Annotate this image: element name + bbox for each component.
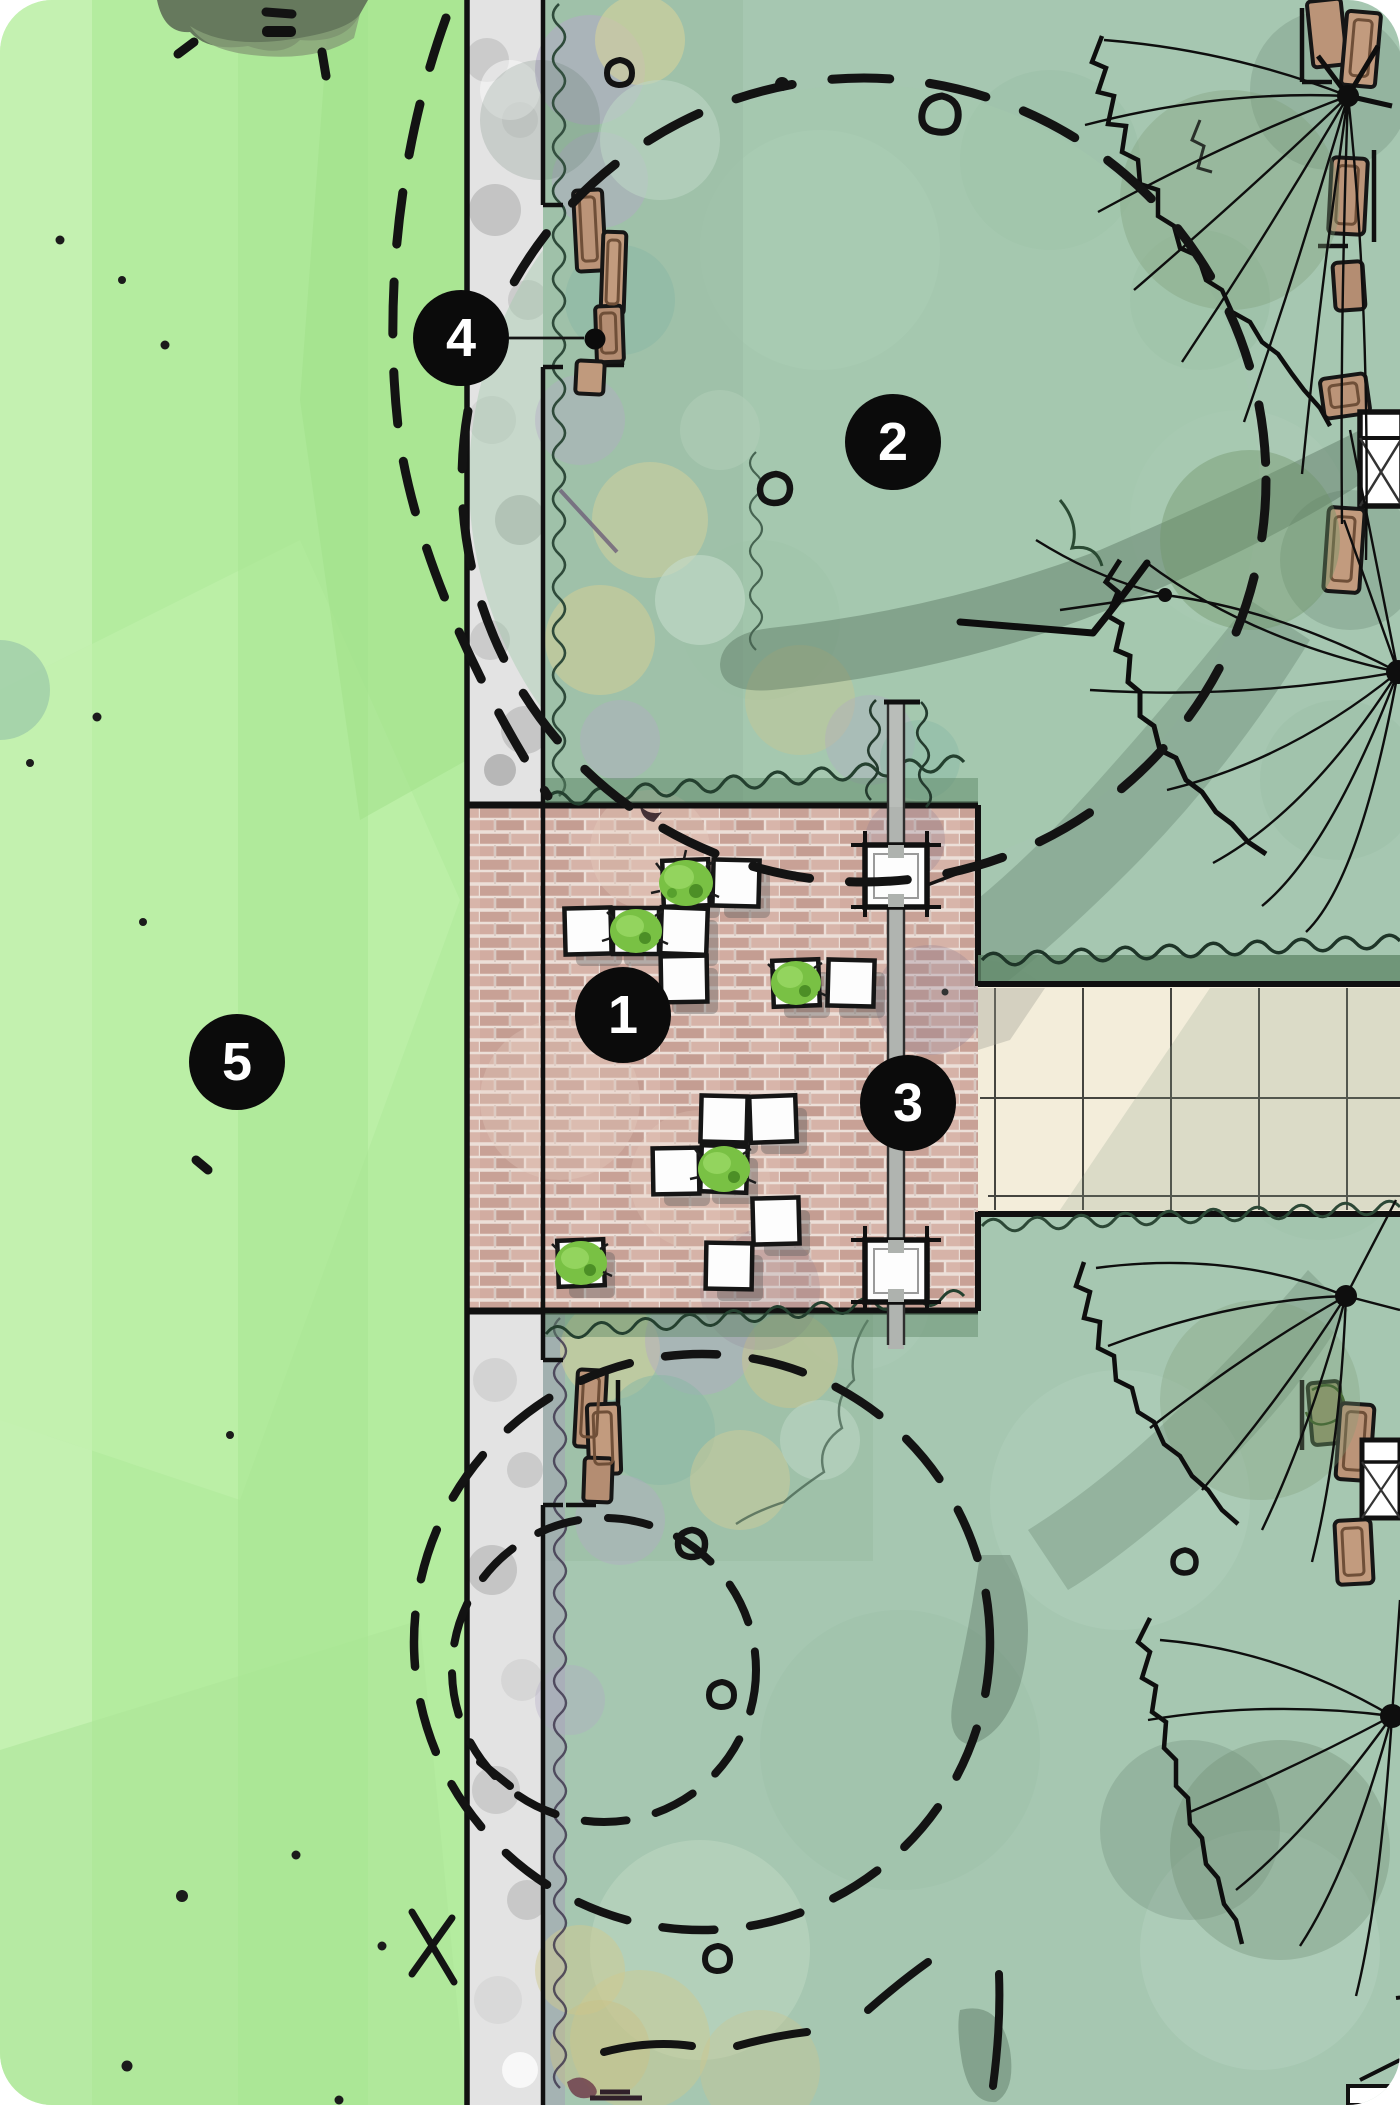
marker-1-label: 1 (608, 988, 638, 1042)
paver-walkway (978, 935, 1400, 1231)
marker-3: 3 (860, 1055, 956, 1151)
marker-1: 1 (575, 967, 671, 1063)
marker-2: 2 (845, 394, 941, 490)
marker-5-label: 5 (222, 1035, 252, 1089)
marker-5: 5 (189, 1014, 285, 1110)
marker-4: 4 (413, 290, 509, 386)
landscape-plan: 1 2 3 4 5 (0, 0, 1400, 2105)
table-icon (1362, 1440, 1400, 1518)
marker-2-label: 2 (878, 415, 908, 469)
rill-node-icon (851, 1226, 941, 1312)
marker-3-label: 3 (893, 1076, 923, 1130)
rill-node-icon (851, 831, 941, 917)
bench-icon (1348, 2086, 1392, 2105)
site-plan-screenshot: 1 2 3 4 5 (0, 0, 1400, 2105)
marker-4-label: 4 (446, 311, 476, 365)
